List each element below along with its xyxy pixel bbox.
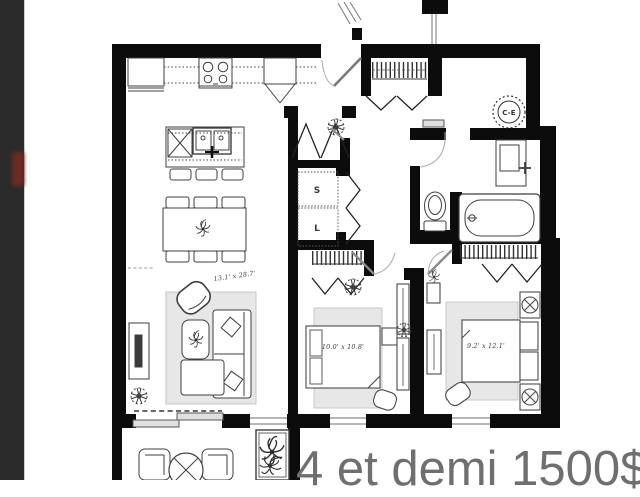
water-heater: C-E xyxy=(493,96,525,128)
balcony-table xyxy=(169,453,203,480)
chaise-ottoman xyxy=(181,360,224,395)
dryer-label: S xyxy=(314,186,320,196)
toilet xyxy=(424,192,446,231)
kitchen-counter-edge xyxy=(164,67,318,83)
balcony-chair xyxy=(202,449,233,480)
kitchen-cabinet xyxy=(128,58,164,91)
balcony-planter xyxy=(256,430,289,480)
bedroom2-shelf xyxy=(427,283,440,303)
fridge xyxy=(264,58,296,103)
water-heater-label: C-E xyxy=(502,109,516,117)
kitchen-island xyxy=(166,127,244,167)
entrance-door-arc xyxy=(322,60,334,86)
balcony-chair xyxy=(139,449,170,480)
vanity-sink xyxy=(496,140,531,186)
bedroom2-pillow xyxy=(520,352,538,380)
entry-closet xyxy=(366,70,427,110)
washer-label: L xyxy=(314,224,320,234)
bedroom2-closet xyxy=(460,252,542,282)
floorplan-svg: 13.1' x 28.7' xyxy=(0,0,640,480)
floor-plant xyxy=(131,388,147,404)
living-room: 13.1' x 28.7' xyxy=(128,268,256,404)
bedroom2-bed xyxy=(462,320,520,382)
dining-chair xyxy=(194,251,217,262)
dining-chair xyxy=(166,251,189,262)
bedroom2-dimensions: 9.2' x 12.1' xyxy=(467,342,505,350)
laundry-bifold-doors xyxy=(346,172,360,244)
dining-table xyxy=(163,208,246,251)
bathtub xyxy=(459,194,540,242)
listing-caption: 4 et demi 1500$ xyxy=(296,441,640,497)
bedroom1-door-arc xyxy=(374,253,395,274)
bedroom-2: 9.2' x 12.1' xyxy=(427,250,542,410)
closet-bifold-doors xyxy=(366,96,427,110)
living-room-dimensions: 13.1' x 28.7' xyxy=(213,269,256,283)
bedroom2-nightstand xyxy=(520,384,540,410)
dining-chair xyxy=(194,197,217,208)
bathroom-door-leaf xyxy=(423,120,444,127)
island-stools xyxy=(170,169,243,180)
dining-chair xyxy=(222,197,245,208)
dining-area xyxy=(163,197,246,262)
dining-chair xyxy=(166,197,189,208)
bedroom1-plant xyxy=(345,279,361,295)
bedroom2-nightstand xyxy=(520,292,540,318)
entrance-door-leaf xyxy=(334,58,361,86)
sliding-patio-door xyxy=(133,413,223,427)
bedroom1-dimensions: 10.0' x 10.8' xyxy=(322,343,364,351)
bedroom1-nightstand xyxy=(382,328,397,345)
bedroom2-door-leaf xyxy=(428,250,452,274)
bedroom2-pillow xyxy=(520,322,538,350)
tv-stand xyxy=(129,323,149,379)
floorplan-image: 13.1' x 28.7' xyxy=(0,0,640,480)
dining-chair xyxy=(222,251,245,262)
bedroom-1: 10.0' x 10.8' xyxy=(306,252,411,412)
stove xyxy=(199,58,232,88)
